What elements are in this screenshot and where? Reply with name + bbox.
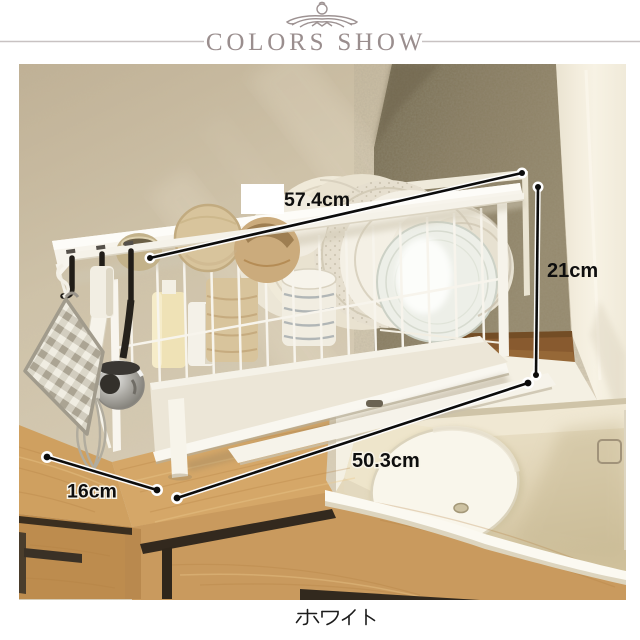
svg-text:COLORS SHOW: COLORS SHOW: [206, 29, 426, 56]
svg-text:16cm: 16cm: [67, 481, 117, 503]
svg-text:50.3cm: 50.3cm: [352, 450, 420, 472]
svg-text:57.4cm: 57.4cm: [284, 189, 350, 211]
svg-text:21cm: 21cm: [547, 260, 598, 282]
